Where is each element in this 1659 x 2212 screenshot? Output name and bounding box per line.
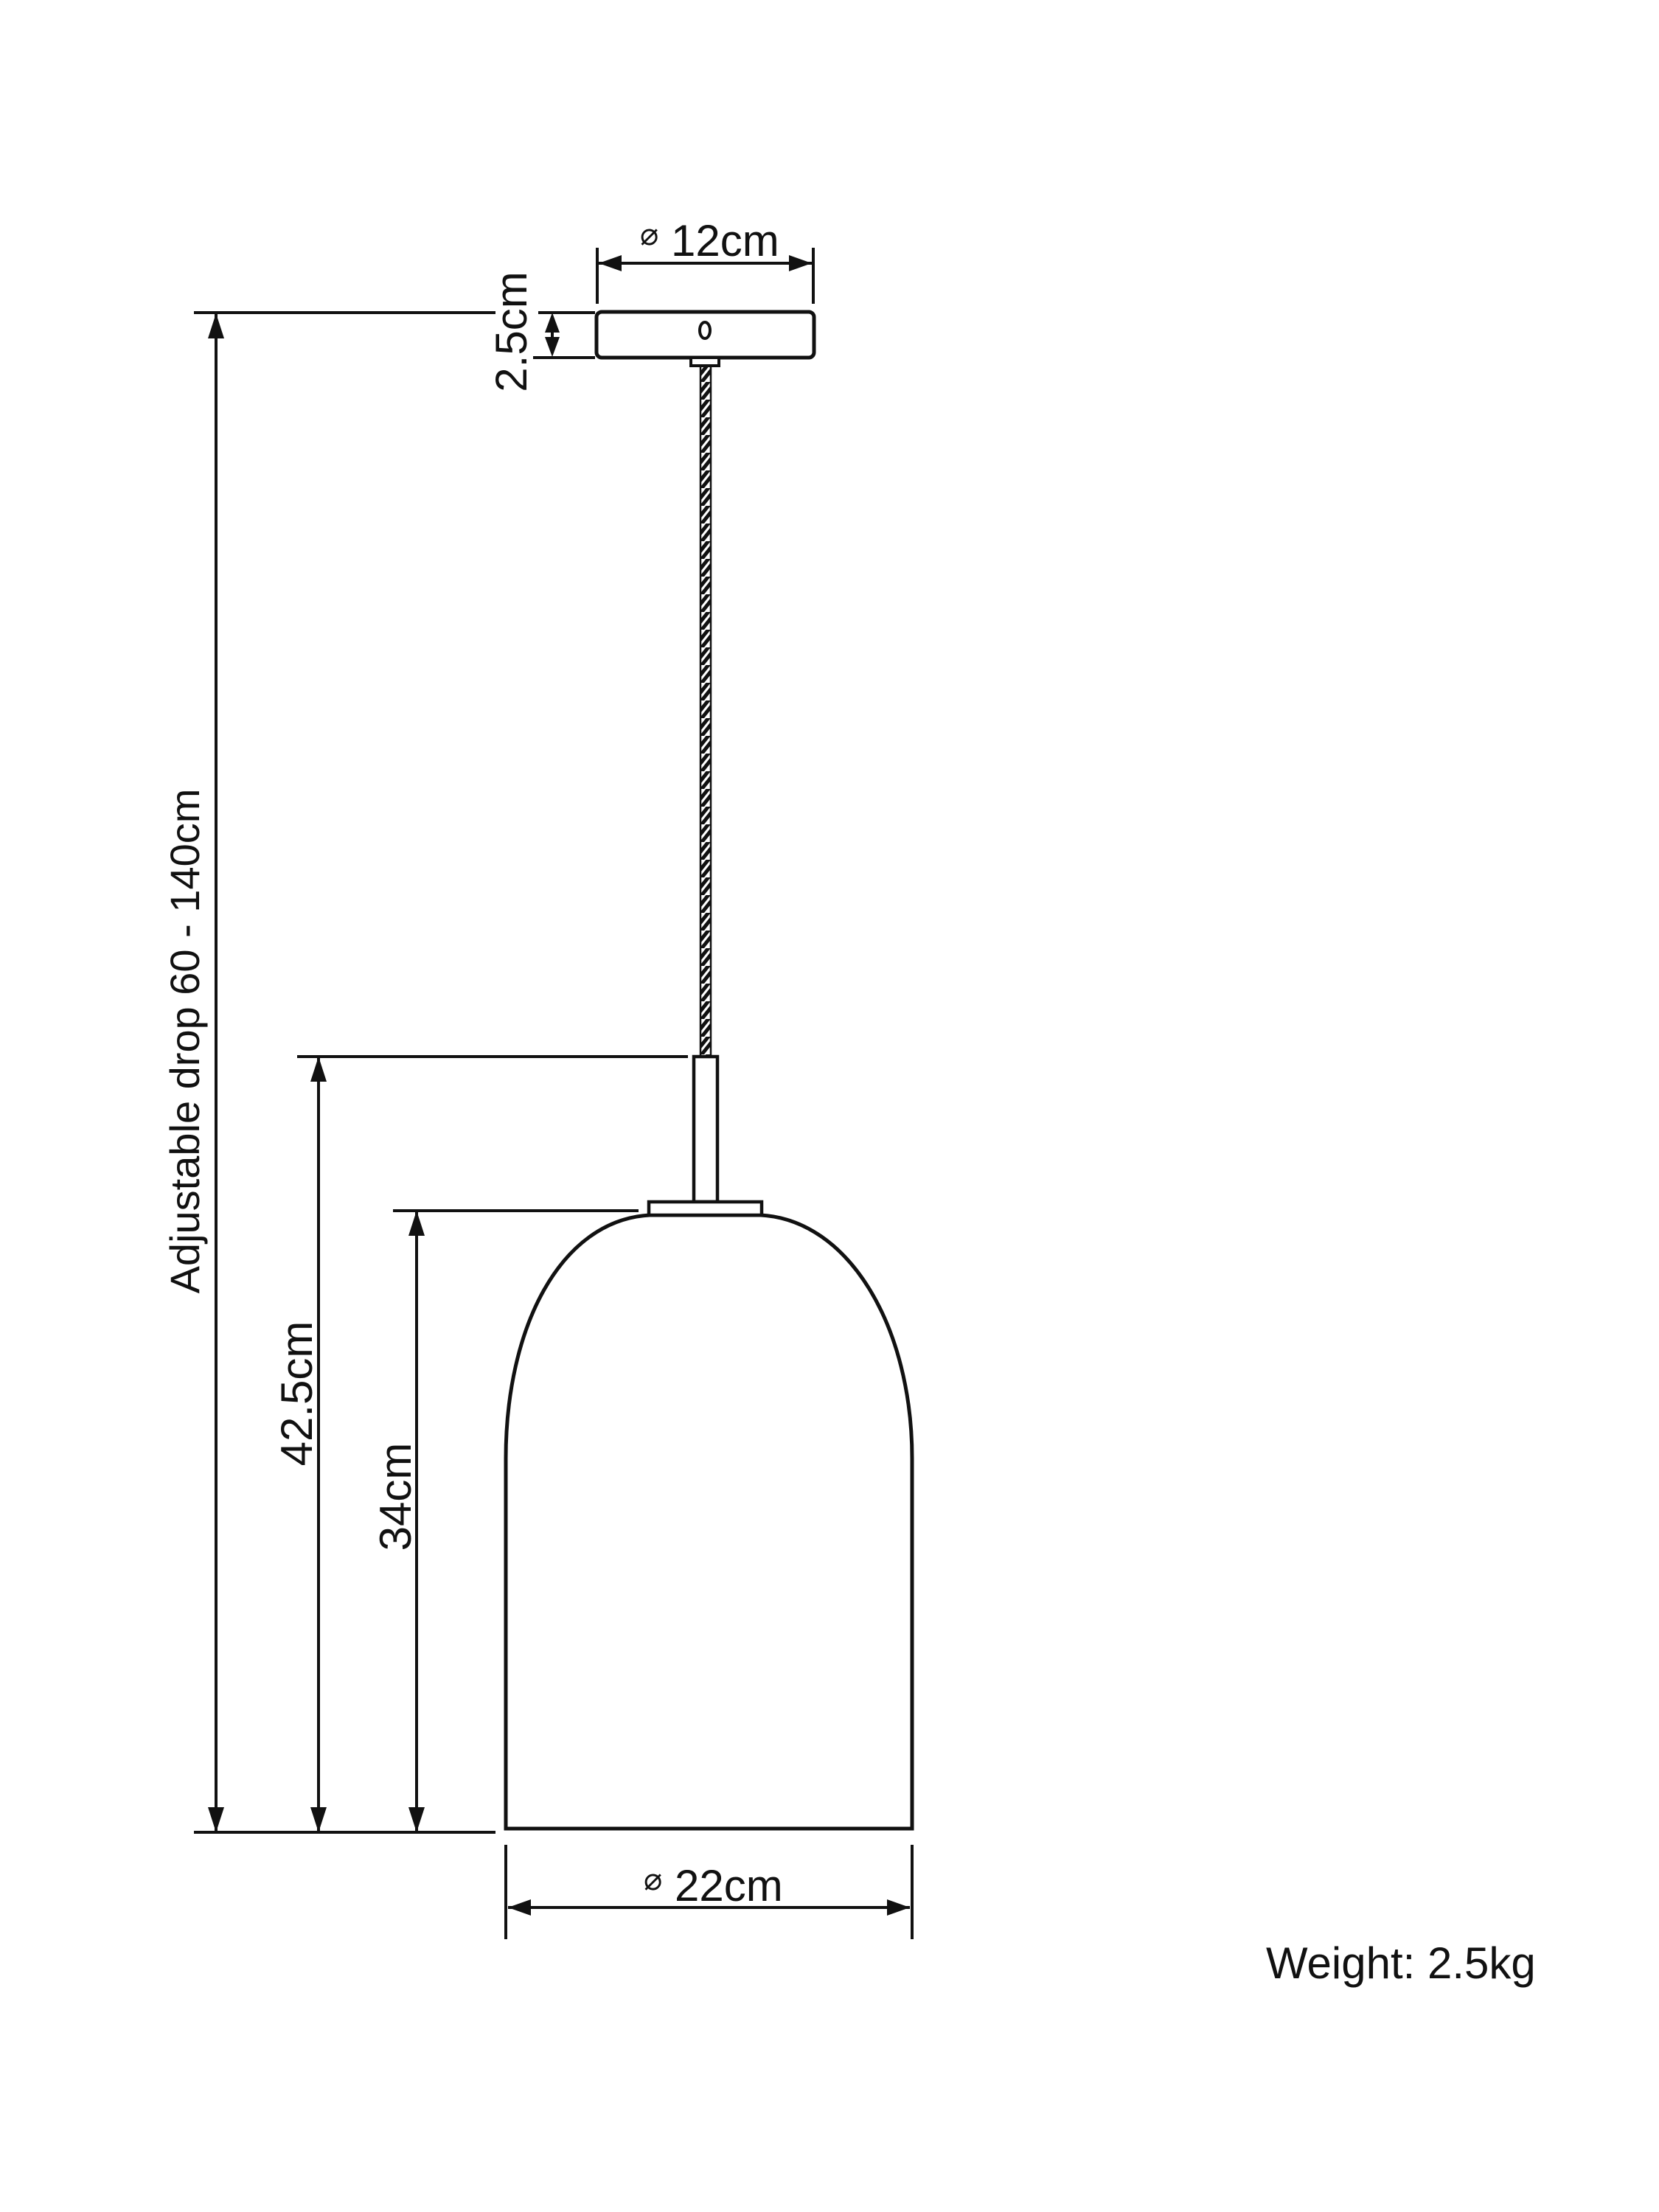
shade-height-label: 34cm	[371, 1443, 420, 1551]
twisted-cable	[700, 364, 711, 1059]
adjustable-drop-label: Adjustable drop 60 - 140cm	[161, 789, 208, 1294]
arrow-left-icon	[599, 255, 622, 271]
shade-stem	[694, 1057, 717, 1202]
diameter-symbol-icon: ⌀	[640, 217, 658, 251]
rose-diameter-label: ⌀ 12cm	[640, 205, 779, 265]
arrow-right-icon	[789, 255, 812, 271]
rose-height-label: 2.5cm	[487, 271, 536, 392]
drop-to-shade-label: 42.5cm	[272, 1321, 321, 1467]
arrow-up-icon	[408, 1211, 425, 1236]
arrow-down-icon	[208, 1807, 224, 1832]
shade-diameter-value: 22cm	[675, 1861, 783, 1910]
arrow-up-icon	[310, 1057, 327, 1082]
arrow-down-icon	[545, 337, 560, 357]
lampshade	[506, 1215, 912, 1829]
arrow-down-icon	[310, 1807, 327, 1832]
pendant-light-diagram: Adjustable drop 60 - 140cm ⌀ 12cm 2.5cm …	[0, 0, 1659, 2212]
dimension-diagram-sheet: Adjustable drop 60 - 140cm ⌀ 12cm 2.5cm …	[0, 0, 1659, 2212]
weight-label: Weight: 2.5kg	[1266, 1938, 1536, 1988]
pendant-light-drawing	[506, 312, 912, 1829]
arrow-down-icon	[408, 1807, 425, 1832]
shade-neck-cap	[649, 1202, 762, 1215]
screw-hole	[700, 322, 710, 338]
diameter-symbol-icon: ⌀	[644, 1862, 662, 1896]
arrow-up-icon	[545, 313, 560, 333]
arrow-left-icon	[508, 1899, 531, 1916]
shade-diameter-label: ⌀ 22cm	[644, 1850, 783, 1910]
rose-diameter-value: 12cm	[671, 216, 779, 265]
arrow-up-icon	[208, 313, 224, 338]
arrow-right-icon	[887, 1899, 910, 1916]
